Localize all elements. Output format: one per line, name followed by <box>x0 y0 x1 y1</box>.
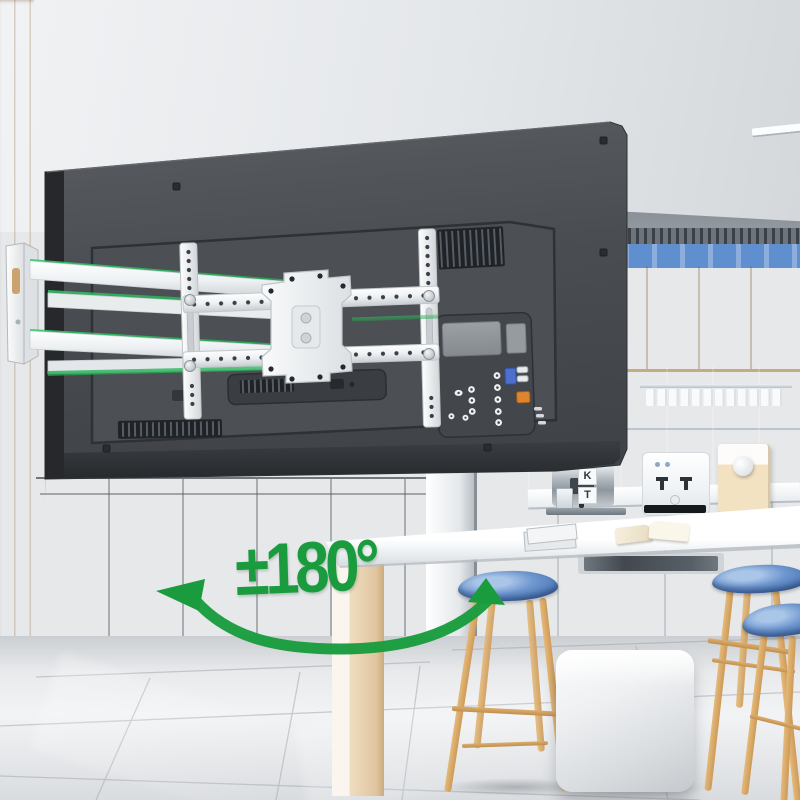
swivel-range-label: ±180° <box>234 524 377 612</box>
mug-shelf <box>640 384 792 388</box>
indicator-light <box>665 462 670 467</box>
wall-mount <box>6 229 441 427</box>
articulating-arms <box>30 259 327 376</box>
logo-mark <box>670 495 680 505</box>
block-letter-t: T <box>578 487 597 504</box>
board-knob <box>733 456 753 476</box>
rca-ports <box>447 372 502 428</box>
open-book-right-page <box>648 520 689 541</box>
indicator-light <box>655 462 660 467</box>
usb-port <box>517 375 528 381</box>
vesa-plate <box>262 270 352 383</box>
usb-port <box>517 367 528 373</box>
coffee-machine <box>642 452 710 516</box>
tv-port-panel <box>435 312 535 437</box>
machine-base <box>644 505 706 513</box>
block-letter-k: K <box>578 468 597 485</box>
letter-blocks: K T <box>578 468 597 504</box>
drip-tray <box>546 508 626 515</box>
cabinet-seam <box>40 493 426 495</box>
cutting-board <box>718 444 770 512</box>
ceiling <box>0 0 800 232</box>
spout-stem <box>660 477 664 490</box>
product-scene: K T <box>0 0 800 800</box>
vga-port <box>505 368 517 384</box>
rail-knobs <box>185 291 435 372</box>
soffit-vent-grille <box>596 228 800 244</box>
vesa-rails <box>180 229 441 427</box>
cube-ottoman <box>556 650 694 792</box>
spout-stem <box>684 477 688 490</box>
cube-top-face <box>556 650 694 686</box>
tv-vent-bottom <box>118 419 222 439</box>
tv-vent-top <box>437 226 505 269</box>
island-niche <box>584 556 718 571</box>
tv-bottom-recess <box>228 369 387 404</box>
mugs-row <box>646 389 784 406</box>
upper-cabinets <box>596 266 800 372</box>
blue-ridge-band <box>596 244 800 268</box>
